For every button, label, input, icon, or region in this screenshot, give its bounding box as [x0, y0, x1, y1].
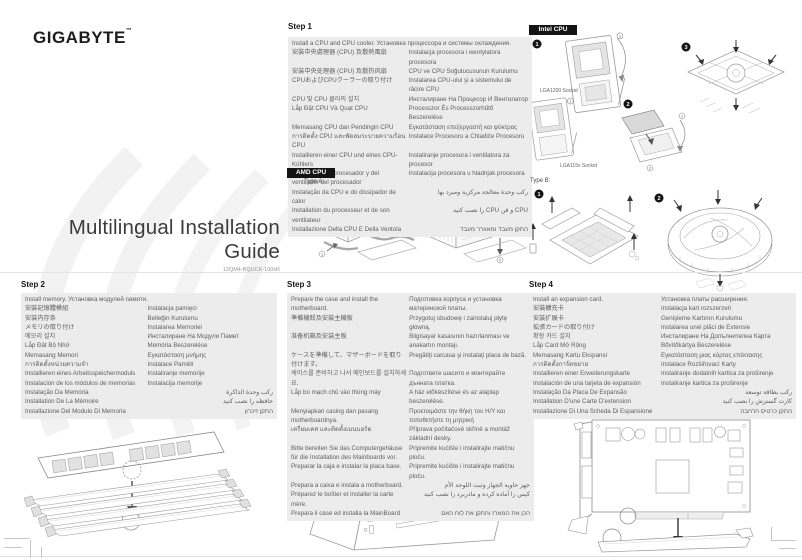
guide-row: Installazione Del Modulo Di Memoriaהתקן … [25, 407, 273, 416]
guide-row: Lắp Đặt CPU Và Quạt CPUProcesszor És Pro… [292, 104, 528, 123]
guide-row: CPUおよびCPUクーラーの取り付けInstalarea CPU-ului şi… [292, 76, 528, 95]
svg-text:1: 1 [321, 253, 323, 257]
type-a-label: Type A: [304, 179, 324, 185]
guide-row: 安裝擴充卡Instalacja kart rozszerzeń [533, 304, 792, 313]
guide-row: 准备机箱及安装主板Bilgisayar kasasının hazırlanma… [291, 332, 530, 351]
step-badge-3: 3 [682, 43, 691, 52]
guide-row: Memasang Kartu EkspansiΕγκατάσταση μιας … [533, 351, 792, 360]
lga115x-label: LGA115x Socket [560, 163, 598, 169]
guide-row: Install memory. Установка модулей памяти… [25, 295, 273, 304]
lga1200-label: LGA1200 Socket [540, 88, 578, 94]
guide-row: Install a CPU and CPU cooler. Установка … [292, 39, 528, 48]
intel-cpu-tag: Intel CPU [529, 25, 577, 35]
guide-row: Installazione Di Una Scheda Di Espansion… [533, 407, 792, 416]
guide-row: 安裝記憶體模組Instalacja pamięci [25, 304, 273, 313]
page-title: Multilingual Installation Guide [40, 216, 280, 264]
guide-row: ケースを準備して、マザーボードを取り付けます。Pregătiţi carcasa… [291, 351, 530, 370]
step-badge-1: 1 [533, 40, 542, 49]
step2-text-box: Install memory. Установка модулей памяти… [21, 293, 277, 419]
print-mark [771, 527, 772, 541]
guide-row: Instalação Da Memóriaركب وحدة الذاكرة [25, 388, 273, 397]
amd-type-b-diagram: 1 2 [528, 186, 792, 290]
guide-row: 케이스를 준비하고 나서 메인보드를 설치하세요.Подгответе шаси… [291, 369, 530, 388]
guide-row: 安裝中央處理器 (CPU) 及散熱風扇Instalacja procesora … [292, 48, 528, 67]
guide-row: Lắp Đặt Bộ NhớMemória Beszerelése [25, 341, 273, 350]
guide-row: การติดตั้งการ์ดขยายInstalace Rozšiřovací… [533, 360, 792, 369]
guide-row: 拡張カードの取り付けInstalarea unei plăci de Exten… [533, 323, 792, 332]
step-badge-2: 2 [655, 194, 664, 203]
step-badge-2: 2 [624, 100, 633, 109]
step3-text-box: Prepare the case and install the motherb… [287, 293, 534, 521]
print-mark [4, 547, 22, 548]
guide-row: Prepare the case and install the motherb… [291, 295, 530, 314]
svg-text:1: 1 [537, 192, 540, 198]
guide-row: 확장 카드 설치Инсталиране На Допълнителна Карт… [533, 332, 792, 341]
print-mark [772, 540, 796, 541]
part-number: 12QM4-BQUCK-100xR [40, 267, 280, 273]
guide-row: Lắp Card Mở RộngBővítőkártya Beszerelése [533, 341, 792, 350]
guide-row: Memasang MemoriΕγκατάσταση μνήμης [25, 351, 273, 360]
guide-row: Installieren einer CPU und eines CPU-Küh… [292, 151, 528, 170]
step-badge-1: 1 [535, 190, 544, 199]
guide-row: Memasang CPU dan Pendingin CPUΕγκατάστασ… [292, 123, 528, 132]
guide-row: Bitte bereiten Sie das Computergehäuse f… [291, 444, 530, 463]
step4-heading: Step 4 [529, 280, 553, 289]
guide-row: Instalação da CPU e do dissipador de cal… [292, 188, 528, 207]
guide-row: Installation De La Mémoireحافظه را نصب ك… [25, 397, 273, 406]
memory-install-diagram [22, 424, 272, 556]
guide-row: Instalación de los módulos de memoriasIn… [25, 379, 273, 388]
title-block: Multilingual Installation Guide 12QM4-BQ… [40, 216, 280, 273]
installation-guide-page: GIGABYTE™ Multilingual Installation Guid… [0, 0, 802, 560]
guide-row: Installieren einer ErweiterungskarteInst… [533, 369, 792, 378]
svg-text:2: 2 [657, 196, 660, 202]
svg-text:2: 2 [626, 102, 629, 108]
guide-row: เตรียมเคส และติดตั้งเมนบอร์ดPříprava poč… [291, 425, 530, 444]
guide-row: Install an expansion card.Установка плат… [533, 295, 792, 304]
guide-row: CPU 및 CPU 쿨러의 설치Инсталиране На Процесор … [292, 95, 528, 104]
guide-row: Instalación de una tarjeta de expansiónI… [533, 379, 792, 388]
guide-row: Installation du processeur et de son ven… [292, 206, 528, 225]
guide-row: การติดตั้ง CPU และพัดลมระบายความร้อน CPU… [292, 132, 528, 151]
print-mark [779, 548, 796, 549]
guide-row: Installation D'une Carte D'extensionكارت… [533, 397, 792, 406]
svg-text:1: 1 [535, 42, 538, 48]
amd-cpu-tag: AMD CPU [287, 168, 335, 178]
gigabyte-logo: GIGABYTE™ [33, 28, 132, 48]
type-b-label: Type B: [530, 178, 550, 184]
page-bottom-edge [0, 556, 802, 557]
print-mark [4, 538, 30, 539]
step2-heading: Step 2 [21, 280, 45, 289]
guide-row: Preparar la caja e instalar la placa bas… [291, 462, 530, 481]
svg-text:1: 1 [681, 115, 683, 119]
guide-row: Installazione Della CPU E Della Ventolaה… [292, 225, 528, 234]
step1-text-box: Install a CPU and CPU cooler. Установка … [288, 37, 532, 237]
guide-row: Prepara il case ed installa la MainBoard… [291, 509, 530, 518]
guide-row: 準備機殼及安裝主機板Przygotuj obudowę i zainstaluj… [291, 314, 530, 333]
svg-text:2: 2 [649, 167, 651, 171]
svg-text:2: 2 [499, 259, 501, 263]
expansion-card-diagram [538, 416, 802, 558]
guide-row: 安装中央处理器 (CPU) 及散热风扇CPU ve CPU Soğutucusu… [292, 67, 528, 76]
step3-heading: Step 3 [287, 280, 311, 289]
guide-row: Installieren eines Arbeitsspeichermoduls… [25, 369, 273, 378]
print-mark [41, 547, 42, 558]
step1-heading: Step 1 [288, 22, 312, 31]
guide-row: Préparez le boîtier et installer la cart… [291, 490, 530, 509]
guide-row: 메모리 설치Инсталиране На Модули Памет [25, 332, 273, 341]
print-mark [30, 540, 31, 558]
guide-row: Instalação Da Placa De Expansãoركب بطاقة… [533, 388, 792, 397]
svg-text:3: 3 [684, 45, 687, 51]
guide-row: Lắp bo mạch chủ vào thùng máyA ház előké… [291, 388, 530, 407]
guide-row: 安装扩展卡Genişleme Kartının Kurulumu [533, 314, 792, 323]
guide-row: 安装内存条Belleğin Kurulumu [25, 314, 273, 323]
trademark-symbol: ™ [126, 28, 133, 34]
intel-cpu-install-diagram: 1 1 LGA1200 Socket 1 LGA115x Socket [528, 34, 800, 172]
guide-row: การติดตั้งหน่วยความจำInstalace Pamětí [25, 360, 273, 369]
guide-row: Menyiapkan casing dan pasang motherboard… [291, 407, 530, 426]
guide-row: メモリの取り付けInstalarea Memoriei [25, 323, 273, 332]
guide-row: Prepara a caixa e instala a motherboard.… [291, 481, 530, 490]
step4-text-box: Install an expansion card.Установка плат… [529, 293, 796, 419]
